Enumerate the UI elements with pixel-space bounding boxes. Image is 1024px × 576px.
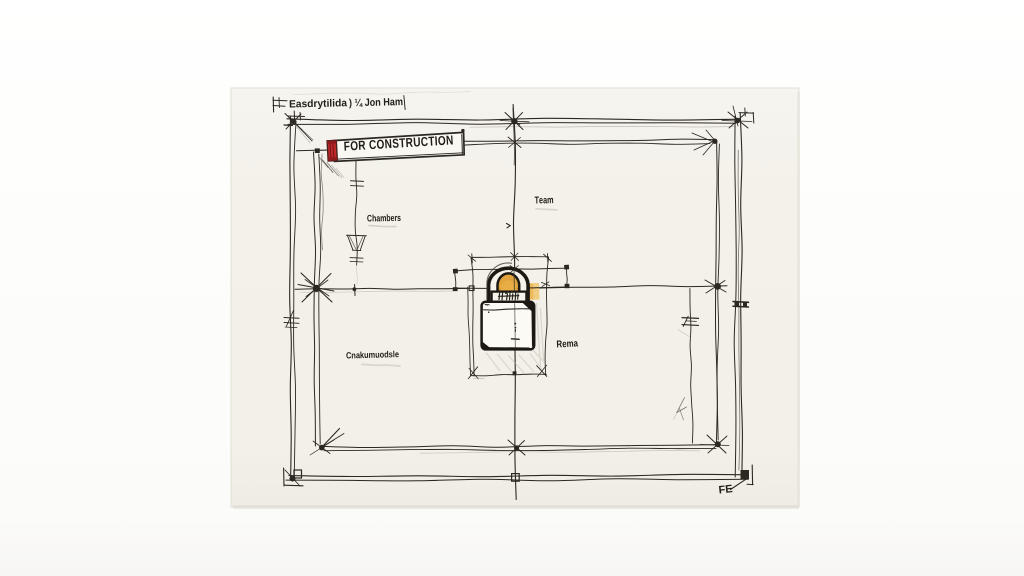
svg-text:Tеam: Tеam: [534, 195, 553, 206]
svg-text:FE: FE: [718, 483, 733, 496]
svg-text:) ¼ Jon Ham: ) ¼ Jon Ham: [349, 96, 403, 109]
svg-text:Rеma: Rеma: [556, 338, 578, 350]
svg-text:Chambers: Chambers: [367, 213, 401, 225]
svg-text:Cnakumuodsle: Cnakumuodsle: [346, 349, 399, 360]
svg-text:Easdrytilida: Easdrytilida: [289, 97, 347, 110]
